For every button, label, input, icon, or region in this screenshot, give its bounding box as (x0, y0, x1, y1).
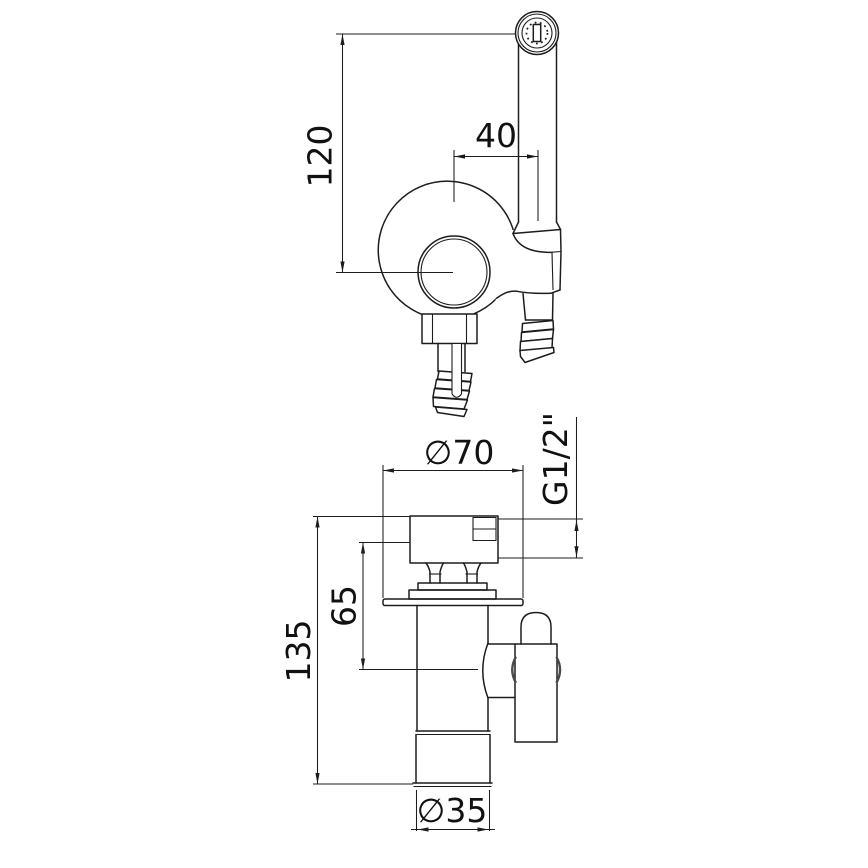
escutcheon-front (383, 599, 523, 606)
dim-40-label: 40 (475, 116, 517, 155)
hose-nut (422, 314, 477, 344)
dim-g12: G1/2" (498, 412, 583, 558)
outlet-joint-curve (483, 643, 488, 698)
main-tube (413, 606, 492, 787)
technical-drawing: 120 40 (0, 0, 868, 868)
shower-holder (489, 613, 561, 743)
valve-body-front (410, 516, 498, 563)
center-hose (433, 344, 472, 417)
top-view: 120 40 (301, 12, 562, 417)
dim-120-label: 120 (301, 125, 340, 188)
wall-plate-circle (378, 181, 515, 319)
drawing-canvas: 120 40 (0, 0, 868, 868)
dim-135-label: 135 (279, 620, 318, 683)
outlet-boss (495, 222, 561, 300)
dim-g12-label: G1/2" (536, 412, 575, 506)
handle-socket (521, 613, 551, 645)
dim-70-label: ∅70 (424, 433, 495, 472)
handshower-head-top (516, 12, 559, 55)
dim-40: 40 (454, 116, 538, 221)
head-slot (533, 25, 540, 42)
dim-35: ∅35 (411, 790, 495, 831)
dim-135: 135 (279, 517, 413, 785)
dim-35-label: ∅35 (417, 791, 488, 830)
side-hose (520, 293, 554, 362)
dim-65-label: 65 (325, 585, 364, 627)
front-view: ∅70 G1/2" 65 135 (279, 412, 583, 831)
valve-stem (409, 563, 496, 599)
